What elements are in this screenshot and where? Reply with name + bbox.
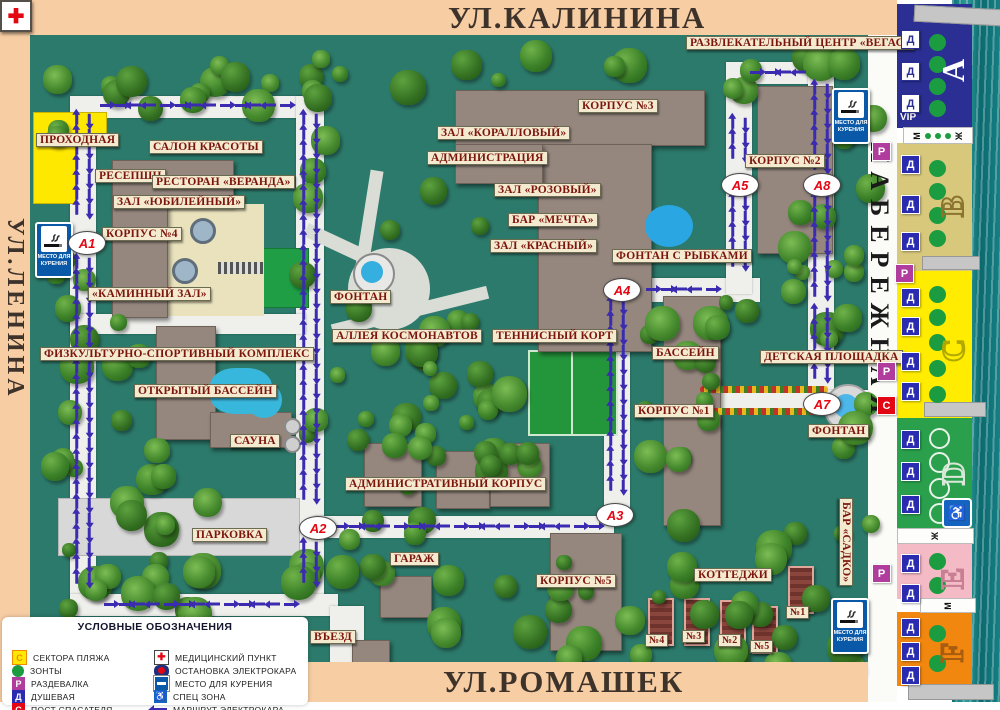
route-arrow <box>302 489 305 500</box>
route-arrow <box>826 99 829 110</box>
legend-item-label: СЕКТОРА ПЛЯЖА <box>33 653 110 663</box>
tree <box>615 606 644 635</box>
route-arrow <box>315 174 318 185</box>
map-label-prohodnaya: ПРОХОДНАЯ <box>36 133 119 147</box>
map-label-kottedzhi: КОТТЕДЖИ <box>694 568 772 582</box>
route-arrow <box>88 159 91 170</box>
tree <box>382 433 406 457</box>
route-arrow <box>622 345 625 356</box>
tree <box>221 62 251 92</box>
beach-umbrella <box>929 100 946 117</box>
tree <box>408 436 433 461</box>
route-arrow <box>315 459 318 470</box>
map-label-salon_krasoty: САЛОН КРАСОТЫ <box>149 140 263 154</box>
lifeguard-post-icon: С <box>12 703 25 710</box>
route-arrow <box>88 114 91 125</box>
shower-badge: Д <box>901 430 920 449</box>
route-arrow <box>149 603 160 606</box>
fountain-center-water <box>361 261 383 283</box>
legend-title: УСЛОВНЫЕ ОБОЗНАЧЕНИЯ <box>2 621 308 633</box>
route-arrow <box>315 294 318 305</box>
map-label-fontan_s_rybkami: ФОНТАН С РЫБКАМИ <box>612 249 752 263</box>
route-arrow <box>826 84 829 95</box>
tree <box>788 200 813 225</box>
toilet-strip: М <box>920 598 976 613</box>
stop-dot <box>158 667 165 674</box>
beach-umbrella <box>929 286 946 303</box>
legend-item-label: ДУШЕВАЯ <box>31 692 75 702</box>
tree <box>645 306 680 341</box>
flower-bed <box>700 386 828 393</box>
route-arrow <box>88 333 91 344</box>
route-arrow <box>499 525 510 528</box>
route-arrow <box>646 288 657 291</box>
map-label-cottage_4: №4 <box>645 634 668 647</box>
route-arrow <box>826 286 829 297</box>
route-arrow <box>514 525 525 528</box>
cigarette-icon <box>837 602 863 628</box>
map-label-korpus_4: КОРПУС №4 <box>102 227 182 241</box>
route-arrow <box>145 104 156 107</box>
tree <box>772 625 797 650</box>
shower-badge: Д <box>901 462 920 481</box>
route-stop-marker-a5: А5 <box>721 173 759 197</box>
street-kalinina: УЛ.КАЛИНИНА <box>448 0 706 36</box>
tree <box>652 590 666 604</box>
route-arrow <box>104 603 115 606</box>
map-label-bar_mechta: БАР «МЕЧТА» <box>508 213 598 227</box>
route-arrow <box>88 303 91 314</box>
cigarette-icon <box>41 226 67 252</box>
map-label-otkryty_bassein: ОТКРЫТЫЙ БАССЕЙН <box>134 384 277 398</box>
route-arrow <box>88 498 91 509</box>
cigarette-icon <box>838 92 864 118</box>
route-arrow <box>813 286 816 297</box>
legend-item: ♿СПЕЦ ЗОНА <box>154 690 226 703</box>
map-label-parkovka: ПАРКОВКА <box>192 528 267 542</box>
beach-umbrella <box>929 230 946 247</box>
route-arrow <box>622 450 625 461</box>
shower-badge: Д <box>901 62 920 81</box>
tree <box>492 376 528 412</box>
pier <box>908 684 994 700</box>
shower-badge: Д <box>901 666 920 685</box>
umbrella-dot <box>935 133 941 139</box>
tree <box>423 395 439 411</box>
tree <box>111 410 132 431</box>
beach-umbrella <box>929 34 946 51</box>
beach-umbrella <box>929 625 946 642</box>
route-arrow <box>731 148 734 159</box>
route-arrow <box>88 363 91 374</box>
shower-badge: Д <box>901 495 920 514</box>
route-arrow <box>826 226 829 237</box>
tree <box>121 576 156 611</box>
route-arrow <box>315 399 318 410</box>
route-arrow <box>88 558 91 569</box>
route-arrow <box>220 104 231 107</box>
map-label-bar_sadko: БАР «САДКО» <box>839 498 853 586</box>
shower-icon: Д <box>12 690 25 703</box>
fountain-fish <box>645 205 693 247</box>
route-arrow <box>589 525 600 528</box>
beach-sector-icon: С <box>12 650 27 665</box>
route-arrow <box>88 483 91 494</box>
umbrella-icon <box>12 665 24 677</box>
legend-item: РРАЗДЕВАЛКА <box>12 677 89 690</box>
route-arrow <box>88 204 91 215</box>
tree <box>41 452 70 481</box>
shower-badge: Д <box>901 642 920 661</box>
tree <box>144 438 169 463</box>
route-arrow <box>439 525 450 528</box>
route-arrow <box>88 378 91 389</box>
sector-letter-Е: Е <box>934 568 971 589</box>
tree <box>735 299 759 323</box>
route-arrow <box>813 368 816 379</box>
route-arrow <box>744 211 747 222</box>
pier <box>924 402 986 417</box>
map-label-sauna: САУНА <box>230 434 280 448</box>
tree <box>358 411 374 427</box>
tree <box>193 488 222 517</box>
route-arrow <box>315 324 318 335</box>
route-arrow <box>826 129 829 140</box>
building <box>352 640 390 664</box>
map-label-restoran_veranda: РЕСТОРАН «ВЕРАНДА» <box>152 175 295 189</box>
route-arrow <box>88 258 91 269</box>
route-arrow <box>75 573 78 584</box>
tree <box>362 510 385 533</box>
tree <box>151 464 176 489</box>
cigarette <box>157 682 166 685</box>
smoking-sign-label: МЕСТО ДЛЯКУРЕНИЯ <box>833 630 867 643</box>
beach-umbrella <box>929 309 946 326</box>
badge-changing-room: Р <box>895 264 914 283</box>
route-arrow <box>315 129 318 140</box>
beach-umbrella <box>929 428 950 449</box>
badge-changing-room: Р <box>872 564 891 583</box>
map-label-tennisny_kort: ТЕННИСНЫЙ КОРТ <box>492 329 617 343</box>
map-label-korpus_5: КОРПУС №5 <box>536 574 616 588</box>
route-arrow <box>315 234 318 245</box>
tree <box>326 555 359 588</box>
legend-item: ССЕКТОРА ПЛЯЖА <box>12 651 110 664</box>
street-lenina: УЛ.ЛЕНИНА <box>1 218 28 400</box>
tree <box>517 442 539 464</box>
route-arrow <box>88 468 91 479</box>
route-arrow <box>454 525 465 528</box>
route-arrow <box>315 339 318 350</box>
tree <box>431 618 461 648</box>
tree <box>155 515 175 535</box>
umbrella-dot <box>925 133 931 139</box>
toilet-symbol: М <box>912 132 922 140</box>
route-arrow <box>622 330 625 341</box>
map-label-korpus_3: КОРПУС №3 <box>578 99 658 113</box>
sector-letter-В: В <box>934 196 971 217</box>
route-arrow <box>826 338 829 349</box>
route-arrow <box>315 144 318 155</box>
route-arrow <box>315 279 318 290</box>
route-arrow <box>284 603 295 606</box>
toilet-symbol: Ж <box>954 131 964 139</box>
beach-umbrella <box>929 386 946 403</box>
tree <box>304 84 332 112</box>
route-arrow <box>744 133 747 144</box>
route-arrow <box>100 104 111 107</box>
legend-item-label: МЕДИЦИНСКИЙ ПУНКТ <box>175 653 277 663</box>
route-arrow <box>75 204 78 215</box>
route-arrow <box>622 480 625 491</box>
route-arrow <box>315 249 318 260</box>
badge-changing-room: Р <box>872 142 891 161</box>
route-arrow <box>88 543 91 554</box>
tree <box>423 361 438 376</box>
tree <box>513 615 547 649</box>
beach-umbrella <box>929 360 946 377</box>
route-arrow <box>826 368 829 379</box>
route-arrow <box>315 414 318 425</box>
legend-item: ЗОНТЫ <box>12 664 62 677</box>
route-arrow <box>315 444 318 455</box>
route-arrow <box>88 174 91 185</box>
map-label-alleya_kosmonavtov: АЛЛЕЯ КОСМОНАВТОВ <box>332 329 482 343</box>
street-romashek: УЛ.РОМАШЕК <box>443 664 684 700</box>
shower-badge: Д <box>901 554 920 573</box>
route-arrow <box>302 572 305 583</box>
parking-area <box>58 498 300 556</box>
legend-item-label: МЕСТО ДЛЯ КУРЕНИЯ <box>175 679 273 689</box>
badge-changing-room: Р <box>877 362 896 381</box>
legend-item: МЕСТО ДЛЯ КУРЕНИЯ <box>154 677 273 690</box>
legend-item-label: МАРШРУТ ЭЛЕКТРОКАРА <box>173 705 284 710</box>
route-arrow <box>315 572 318 583</box>
tree <box>183 556 215 588</box>
route-arrow <box>622 435 625 446</box>
pier <box>922 256 980 270</box>
map-label-fontan_center: ФОНТАН <box>330 290 391 304</box>
legend-item-label: ПОСТ СПАСАТЕЛЯ <box>31 705 113 710</box>
tree <box>781 279 806 304</box>
route-arrow <box>622 390 625 401</box>
tree <box>833 304 861 332</box>
beach-umbrella <box>929 160 946 177</box>
tree <box>451 50 481 80</box>
route-arrow <box>706 288 717 291</box>
wheelchair-zone-sign: ♿ <box>942 498 972 528</box>
tree <box>116 66 147 97</box>
route-arrow <box>88 573 91 584</box>
tennis-court-line <box>571 352 573 434</box>
route-stop-marker-a8: А8 <box>803 173 841 197</box>
route-stop-marker-a7: А7 <box>803 392 841 416</box>
smoking-area-sign: МЕСТО ДЛЯКУРЕНИЯ <box>35 222 73 278</box>
route-stop-marker-a3: А3 <box>596 503 634 527</box>
route-arrow <box>826 256 829 267</box>
route-arrow-icon <box>154 703 167 710</box>
route-arrow <box>826 271 829 282</box>
route-arrow <box>315 489 318 500</box>
route-arrow <box>622 405 625 416</box>
route-arrow <box>394 525 405 528</box>
toilet-strip: МЖ <box>903 127 973 144</box>
route-arrow <box>315 557 318 568</box>
shower-badge: Д <box>901 195 920 214</box>
route-arrow <box>315 114 318 125</box>
tree <box>360 554 386 580</box>
route-stop-marker-a2: А2 <box>299 516 337 540</box>
legend-item-label: РАЗДЕВАЛКА <box>31 679 89 689</box>
tree <box>471 217 490 236</box>
smoking-icon <box>154 676 169 691</box>
route-arrow <box>224 603 235 606</box>
route-arrow <box>559 525 570 528</box>
tree <box>110 314 127 331</box>
badge-lifeguard-post: С <box>877 396 896 415</box>
small-fountain <box>190 218 216 244</box>
tree <box>604 56 625 77</box>
tree <box>556 555 571 570</box>
route-arrow <box>574 525 585 528</box>
tree <box>667 552 697 582</box>
sector-letter-F: F <box>933 643 970 663</box>
route-arrow <box>826 159 829 170</box>
map-label-zal_krasny: ЗАЛ «КРАСНЫЙ» <box>490 239 597 253</box>
tree <box>43 65 72 94</box>
tree <box>690 600 719 629</box>
smoking-area-sign: МЕСТО ДЛЯКУРЕНИЯ <box>832 88 870 144</box>
route-arrow <box>160 104 171 107</box>
sector-letter-D: D <box>935 462 972 485</box>
shower-badge: Д <box>901 618 920 637</box>
map-label-cottage_1: №1 <box>786 606 809 619</box>
route-arrow <box>88 189 91 200</box>
route-arrow <box>315 189 318 200</box>
tree <box>390 70 426 106</box>
route-stop-marker-a4: А4 <box>603 278 641 302</box>
map-label-administrativny_korpus: АДМИНИСТРАТИВНЫЙ КОРПУС <box>345 477 546 491</box>
tree <box>459 415 474 430</box>
shower-badge: Д <box>901 94 920 113</box>
wheelchair-icon: ♿ <box>154 690 167 703</box>
building <box>156 326 216 440</box>
route-arrow <box>826 144 829 155</box>
tree <box>467 361 492 386</box>
tree <box>380 220 400 240</box>
tree <box>667 509 700 542</box>
map-label-zal_korallovy: ЗАЛ «КОРАЛЛОВЫЙ» <box>437 126 570 140</box>
route-arrow <box>88 453 91 464</box>
tennis-court <box>528 350 618 436</box>
route-arrow <box>88 318 91 329</box>
route-arrow <box>744 226 747 237</box>
toilet-symbol: М <box>943 602 953 610</box>
route-arrow <box>315 369 318 380</box>
map-label-vegas: РАЗВЛЕКАТЕЛЬНЫЙ ЦЕНТР «ВЕГАС» <box>686 36 914 50</box>
legend-item-label: ОСТАНОВКА ЭЛЕКТРОКАРА <box>175 666 296 676</box>
medical-cross-icon: ✚ <box>154 650 169 665</box>
toilet-symbol: Ж <box>930 532 940 540</box>
map-label-fizkulturno: ФИЗКУЛЬТУРНО-СПОРТИВНЫЙ КОМПЛЕКС <box>40 347 314 361</box>
tree <box>339 529 360 550</box>
shower-badge: Д <box>901 352 920 371</box>
route-arrow <box>622 465 625 476</box>
map-label-bassein: БАССЕЙН <box>652 346 719 360</box>
shower-badge: Д <box>901 30 920 49</box>
route-arrow <box>88 438 91 449</box>
map-label-cottage_2: №2 <box>718 634 741 647</box>
legend-item-label: СПЕЦ ЗОНА <box>173 692 226 702</box>
tree <box>420 177 448 205</box>
tree <box>520 40 552 72</box>
small-fountain <box>172 258 198 284</box>
route-arrow <box>826 114 829 125</box>
route-arrow <box>315 429 318 440</box>
smoking-sign-label: МЕСТО ДЛЯКУРЕНИЯ <box>37 254 71 267</box>
sector-letter-А: А <box>935 59 972 82</box>
legend-item: СПОСТ СПАСАТЕЛЯ <box>12 703 113 710</box>
smoking-area-sign: МЕСТО ДЛЯКУРЕНИЯ <box>831 598 869 654</box>
route-arrow <box>826 211 829 222</box>
route-arrow <box>209 603 220 606</box>
route-arrow <box>826 323 829 334</box>
route-arrow <box>164 603 175 606</box>
route-arrow <box>622 375 625 386</box>
umbrella-dot <box>945 133 951 139</box>
tree <box>494 575 517 598</box>
resort-map: ДДДАДДДВДДДДСДДДD♿ДДЕДДДFVIPМЖЖМ РАЗВЛЕК… <box>0 0 1000 710</box>
tree <box>634 440 667 473</box>
tree <box>719 295 733 309</box>
tree <box>116 500 147 531</box>
stairs <box>218 262 264 274</box>
route-arrow <box>315 219 318 230</box>
route-stop-marker-a1: А1 <box>68 231 106 255</box>
route-arrow <box>205 104 216 107</box>
map-label-administratsiya: АДМИНИСТРАЦИЯ <box>427 151 548 165</box>
map-label-zal_rozovy: ЗАЛ «РОЗОВЫЙ» <box>494 183 601 197</box>
electrocar-stop-icon <box>154 665 169 677</box>
route-arrow <box>88 273 91 284</box>
route-arrow <box>315 474 318 485</box>
tree <box>433 565 464 596</box>
map-label-kaminny_zal: «КАМИННЫЙ ЗАЛ» <box>88 287 211 301</box>
shower-badge: Д <box>901 317 920 336</box>
tree <box>725 601 753 629</box>
route-arrow <box>826 196 829 207</box>
route-arrow <box>315 384 318 395</box>
route-arrow <box>622 420 625 431</box>
map-label-garazh: ГАРАЖ <box>390 552 439 566</box>
tree <box>723 78 743 98</box>
route-arrow <box>88 408 91 419</box>
legend: УСЛОВНЫЕ ОБОЗНАЧЕНИЯ ССЕКТОРА ПЛЯЖАЗОНТЫ… <box>2 617 308 705</box>
map-label-korpus_1: КОРПУС №1 <box>634 404 714 418</box>
route-arrow <box>315 542 318 553</box>
route-arrow <box>691 288 702 291</box>
legend-item: ОСТАНОВКА ЭЛЕКТРОКАРА <box>154 664 296 677</box>
shower-badge: Д <box>901 584 920 603</box>
map-label-cottage_5: №5 <box>750 640 773 653</box>
route-arrow <box>750 71 761 74</box>
route-arrow <box>795 71 806 74</box>
route-arrow <box>315 264 318 275</box>
vip-label: VIP <box>900 112 916 123</box>
shower-badge: Д <box>901 232 920 251</box>
tree <box>787 259 802 274</box>
legend-item: ✚МЕДИЦИНСКИЙ ПУНКТ <box>154 651 277 664</box>
